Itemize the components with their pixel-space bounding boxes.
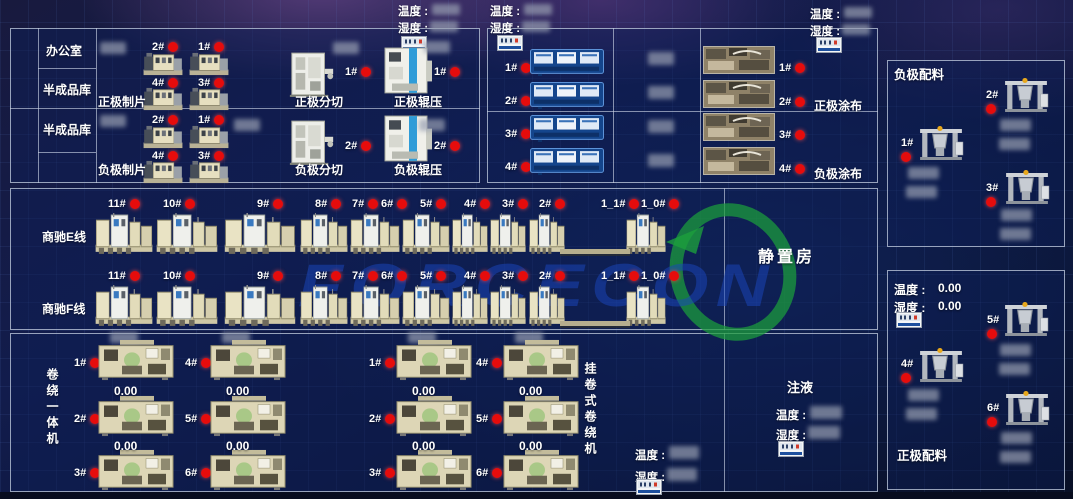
station-unit: 10# — [163, 198, 195, 210]
neg-coating-label: 负极涂布 — [814, 165, 862, 182]
unit-id-label: 4# — [185, 357, 197, 369]
winder-value: 0.00 — [412, 439, 435, 453]
redacted-value — [999, 138, 1030, 150]
winder-value: 0.00 — [226, 384, 249, 398]
neg-batch-title: 负极配料 — [894, 64, 944, 83]
winder-machine[interactable] — [210, 339, 286, 381]
unit-id-label: 2# — [505, 95, 517, 107]
coater-unit: 2# — [779, 96, 805, 108]
redacted-value — [906, 186, 937, 198]
unit-id-label: 2# — [434, 140, 446, 152]
coater-unit: 1# — [779, 62, 805, 74]
station-unit: 11# — [108, 198, 140, 210]
winder-machine[interactable] — [98, 395, 174, 437]
line-machine[interactable] — [490, 213, 526, 258]
unit-id-label: 3# — [502, 198, 514, 210]
resting-room-label: 静置房 — [758, 243, 815, 267]
unit-id-label: 6# — [185, 467, 197, 479]
pos-coating-label: 正极涂布 — [814, 97, 862, 114]
status-indicator — [185, 199, 195, 209]
unit-id-label: 1# — [369, 357, 381, 369]
line-machine[interactable] — [490, 285, 526, 330]
unit-id-label: 7# — [352, 270, 364, 282]
unit-id-label: 3# — [779, 129, 791, 141]
redacted-value — [810, 406, 842, 419]
unit-id-label: 5# — [420, 270, 432, 282]
status-indicator — [986, 104, 996, 114]
sheet-machine[interactable] — [189, 52, 229, 76]
temp-label: 温度 : — [810, 6, 840, 22]
hum-label: 湿度 : — [490, 20, 520, 36]
slitting-machine-unit: 1# — [345, 66, 371, 78]
thermometer-widget — [896, 312, 922, 328]
winder-machine[interactable] — [503, 339, 579, 381]
coater-unit: 3# — [779, 129, 805, 141]
winder-unit: 6# — [185, 467, 211, 479]
redacted-value — [1000, 228, 1031, 240]
mixer-machine[interactable] — [1004, 170, 1050, 206]
redacted-value — [908, 389, 939, 401]
station-unit: 7# — [352, 198, 378, 210]
redacted-value — [669, 446, 699, 459]
temp-label: 温度 : — [776, 407, 806, 423]
line-machine[interactable] — [224, 285, 296, 330]
unit-id-label: 9# — [257, 198, 269, 210]
coater-screen-unit: 2# — [505, 95, 531, 107]
line-machine[interactable] — [224, 213, 296, 258]
line-machine[interactable] — [452, 285, 488, 330]
unit-id-label: 5# — [476, 413, 488, 425]
line-e-label: 商驰E线 — [42, 228, 86, 245]
winder-unit: 1# — [369, 357, 395, 369]
line-machine[interactable] — [95, 213, 153, 258]
redacted-value — [1000, 344, 1031, 356]
pos-batch-title: 正极配料 — [897, 445, 947, 464]
injection-title: 注液 — [787, 377, 813, 396]
redacted-value — [333, 42, 359, 54]
unit-id-label: 5# — [987, 314, 999, 326]
unit-id-label: 3# — [369, 467, 381, 479]
redacted-value — [100, 115, 126, 127]
status-indicator — [987, 329, 997, 339]
roller-press-machine[interactable] — [382, 46, 434, 96]
unit-id-label: 2# — [779, 96, 791, 108]
winder-value: 0.00 — [412, 384, 435, 398]
line-machine[interactable] — [402, 213, 450, 258]
unit-id-label: 1# — [434, 66, 446, 78]
winder-unit: 1# — [74, 357, 100, 369]
mixer-machine[interactable] — [1003, 302, 1049, 338]
unit-id-label: 1# — [901, 137, 913, 149]
temp-value: 0.00 — [938, 281, 961, 295]
status-indicator — [901, 152, 911, 162]
redacted-value — [1000, 451, 1031, 463]
station-unit: 3# — [502, 270, 528, 282]
coater-screen[interactable] — [530, 148, 604, 175]
redacted-value — [842, 24, 870, 35]
coater-unit: 4# — [779, 163, 805, 175]
line-machine[interactable] — [156, 285, 218, 330]
unit-id-label: 4# — [901, 358, 913, 370]
thermometer-widget — [816, 37, 842, 53]
status-indicator — [492, 468, 502, 478]
redacted-value — [906, 408, 937, 420]
winder-unit: 5# — [476, 413, 502, 425]
sheet-machine[interactable] — [189, 87, 229, 111]
redacted-value — [1001, 209, 1032, 221]
status-indicator — [385, 414, 395, 424]
winder-machine[interactable] — [210, 449, 286, 491]
status-indicator — [555, 271, 565, 281]
integrated-winder-label: 卷绕一体机 — [44, 368, 61, 448]
mixer-unit: 6# — [987, 402, 999, 427]
unit-id-label: 1_1# — [601, 198, 625, 210]
sheet-machine[interactable] — [189, 125, 229, 149]
unit-id-label: 8# — [315, 270, 327, 282]
line-machine[interactable] — [452, 213, 488, 258]
unit-id-label: 4# — [476, 357, 488, 369]
line-machine[interactable] — [350, 285, 400, 330]
sheet-machine[interactable] — [143, 125, 183, 149]
status-indicator — [795, 130, 805, 140]
sheet-machine[interactable] — [189, 160, 229, 184]
winder-machine[interactable] — [98, 339, 174, 381]
unit-id-label: 2# — [345, 140, 357, 152]
mixer-machine[interactable] — [918, 126, 964, 162]
status-indicator — [480, 271, 490, 281]
room-label-semi-store: 半成品库 — [43, 81, 91, 98]
status-indicator — [492, 414, 502, 424]
coater-screen-unit: 3# — [505, 128, 531, 140]
status-indicator — [168, 115, 178, 125]
section-label: 负极制片 — [98, 161, 146, 178]
room-label-office: 办公室 — [46, 42, 82, 59]
unit-id-label: 6# — [476, 467, 488, 479]
unit-id-label: 11# — [108, 270, 126, 282]
room-label-semi-store: 半成品库 — [43, 121, 91, 138]
redacted-value — [648, 86, 674, 99]
unit-id-label: 3# — [74, 467, 86, 479]
station-unit: 1_1# — [601, 198, 639, 210]
station-unit: 11# — [108, 270, 140, 282]
status-indicator — [629, 271, 639, 281]
roller-machine-unit: 2# — [434, 140, 460, 152]
sheet-machine[interactable] — [143, 52, 183, 76]
unit-id-label: 5# — [185, 413, 197, 425]
thermometer-widget — [636, 479, 662, 495]
winder-unit: 4# — [185, 357, 211, 369]
unit-id-label: 3# — [986, 182, 998, 194]
redacted-value — [522, 21, 550, 32]
unit-id-label: 1_0# — [641, 198, 665, 210]
status-indicator — [492, 358, 502, 368]
status-indicator — [185, 271, 195, 281]
mixer-machine[interactable] — [1004, 391, 1050, 427]
status-indicator — [518, 271, 528, 281]
mixer-unit: 4# — [901, 358, 913, 383]
unit-id-label: 4# — [464, 198, 476, 210]
status-indicator — [331, 199, 341, 209]
status-indicator — [629, 199, 639, 209]
redacted-value — [648, 52, 674, 65]
redacted-value — [234, 119, 260, 131]
status-indicator — [368, 199, 378, 209]
conveyor — [560, 249, 630, 254]
redacted-value — [424, 41, 450, 53]
winder-unit: 2# — [369, 413, 395, 425]
unit-id-label: 6# — [381, 198, 393, 210]
winder-unit: 4# — [476, 357, 502, 369]
slitting-machine[interactable] — [287, 50, 337, 98]
redacted-value — [100, 42, 126, 54]
winder-unit: 3# — [369, 467, 395, 479]
station-unit: 2# — [539, 270, 565, 282]
unit-id-label: 6# — [987, 402, 999, 414]
winder-unit: 2# — [74, 413, 100, 425]
unit-id-label: 1# — [505, 62, 517, 74]
coater-camera-photo[interactable] — [703, 113, 775, 141]
unit-id-label: 4# — [779, 163, 791, 175]
line-machine[interactable] — [300, 213, 348, 258]
thermometer-widget — [778, 441, 804, 457]
unit-id-label: 2# — [74, 413, 86, 425]
coater-screen[interactable] — [530, 115, 604, 142]
status-indicator — [385, 358, 395, 368]
line-machine[interactable] — [626, 285, 666, 330]
section-label: 负极辊压 — [394, 161, 442, 178]
redacted-value — [808, 426, 840, 439]
redacted-value — [430, 21, 458, 32]
station-unit: 7# — [352, 270, 378, 282]
status-indicator — [397, 271, 407, 281]
status-indicator — [669, 199, 679, 209]
coater-screen-unit: 1# — [505, 62, 531, 74]
thermometer-widget — [497, 35, 523, 51]
station-unit: 9# — [257, 198, 283, 210]
station-unit: 2# — [539, 198, 565, 210]
status-indicator — [385, 468, 395, 478]
mixer-machine[interactable] — [1003, 78, 1049, 114]
station-unit: 8# — [315, 270, 341, 282]
unit-id-label: 2# — [539, 270, 551, 282]
coater-screen[interactable] — [530, 49, 604, 76]
station-unit: 4# — [464, 198, 490, 210]
line-machine[interactable] — [350, 213, 400, 258]
unit-id-label: 2# — [986, 89, 998, 101]
station-unit: 8# — [315, 198, 341, 210]
sheet-machine[interactable] — [143, 160, 183, 184]
section-label: 正极分切 — [295, 93, 343, 110]
unit-id-label: 11# — [108, 198, 126, 210]
mixer-unit: 1# — [901, 137, 913, 162]
line-machine[interactable] — [156, 213, 218, 258]
status-indicator — [130, 199, 140, 209]
redacted-value — [1000, 119, 1031, 131]
station-unit: 9# — [257, 270, 283, 282]
coater-camera-photo[interactable] — [703, 80, 775, 108]
status-indicator — [214, 115, 224, 125]
line-f-label: 商驰F线 — [42, 300, 85, 317]
unit-id-label: 3# — [502, 270, 514, 282]
winder-value: 0.00 — [114, 439, 137, 453]
status-indicator — [450, 141, 460, 151]
status-indicator — [795, 63, 805, 73]
unit-id-label: 4# — [505, 161, 517, 173]
winder-machine[interactable] — [396, 449, 472, 491]
line-machine[interactable] — [402, 285, 450, 330]
status-indicator — [214, 42, 224, 52]
winder-value: 0.00 — [519, 439, 542, 453]
station-unit: 10# — [163, 270, 195, 282]
status-indicator — [518, 199, 528, 209]
winder-unit: 5# — [185, 413, 211, 425]
status-indicator — [436, 271, 446, 281]
hum-label: 湿度 : — [398, 20, 428, 36]
station-unit: 6# — [381, 198, 407, 210]
status-indicator — [168, 42, 178, 52]
coater-camera-photo[interactable] — [703, 46, 775, 74]
unit-id-label: 1# — [779, 62, 791, 74]
unit-id-label: 8# — [315, 198, 327, 210]
status-indicator — [436, 199, 446, 209]
redacted-value — [908, 167, 939, 179]
line-machine[interactable] — [95, 285, 153, 330]
station-unit: 6# — [381, 270, 407, 282]
redacted-value — [432, 4, 460, 15]
station-unit: 5# — [420, 270, 446, 282]
unit-id-label: 3# — [505, 128, 517, 140]
unit-id-label: 1_0# — [641, 270, 665, 282]
winder-machine[interactable] — [210, 395, 286, 437]
winder-value: 0.00 — [519, 384, 542, 398]
winder-machine[interactable] — [503, 449, 579, 491]
mixer-machine[interactable] — [918, 348, 964, 384]
section-label: 正极辊压 — [394, 93, 442, 110]
unit-id-label: 10# — [163, 198, 181, 210]
unit-id-label: 6# — [381, 270, 393, 282]
mixer-unit: 5# — [987, 314, 999, 339]
winder-machine[interactable] — [98, 449, 174, 491]
redacted-value — [648, 120, 674, 133]
station-unit: 3# — [502, 198, 528, 210]
unit-id-label: 1# — [345, 66, 357, 78]
status-indicator — [901, 373, 911, 383]
status-indicator — [987, 417, 997, 427]
hum-value: 0.00 — [938, 299, 961, 313]
status-indicator — [130, 271, 140, 281]
unit-id-label: 9# — [257, 270, 269, 282]
mixer-unit: 2# — [986, 89, 998, 114]
status-indicator — [480, 199, 490, 209]
status-indicator — [669, 271, 679, 281]
winder-unit: 6# — [476, 467, 502, 479]
redacted-value — [1001, 432, 1032, 444]
temp-label: 温度 : — [398, 3, 428, 19]
slitting-machine[interactable] — [287, 118, 337, 166]
status-indicator — [555, 199, 565, 209]
redacted-value — [419, 119, 445, 131]
coater-screen[interactable] — [530, 82, 604, 109]
station-unit: 1_1# — [601, 270, 639, 282]
battery-factory-scada-dashboard: FORCECON 温度 :湿度 :温度 :湿度 :温度 :湿度 :办公室半成品库… — [0, 0, 1073, 499]
status-indicator — [361, 141, 371, 151]
status-indicator — [273, 199, 283, 209]
content-layer: 温度 :湿度 :温度 :湿度 :温度 :湿度 :办公室半成品库半成品库2#1#4… — [0, 0, 1073, 499]
status-indicator — [986, 197, 996, 207]
redacted-value — [648, 154, 674, 167]
redacted-value — [667, 468, 697, 481]
status-indicator — [331, 271, 341, 281]
status-indicator — [795, 164, 805, 174]
mixer-unit: 3# — [986, 182, 998, 207]
winder-value: 0.00 — [226, 439, 249, 453]
status-indicator — [361, 67, 371, 77]
line-machine[interactable] — [300, 285, 348, 330]
coater-screen-unit: 4# — [505, 161, 531, 173]
hanging-winder-label: 挂卷式卷绕机 — [582, 362, 599, 458]
unit-id-label: 1# — [74, 357, 86, 369]
coater-camera-photo[interactable] — [703, 147, 775, 175]
station-unit: 1_0# — [641, 270, 679, 282]
slitting-machine-unit: 2# — [345, 140, 371, 152]
winder-machine[interactable] — [396, 339, 472, 381]
unit-id-label: 7# — [352, 198, 364, 210]
conveyor — [560, 321, 630, 326]
temp-label: 温度 : — [490, 3, 520, 19]
unit-id-label: 5# — [420, 198, 432, 210]
unit-id-label: 1_1# — [601, 270, 625, 282]
winder-machine[interactable] — [396, 395, 472, 437]
status-indicator — [397, 199, 407, 209]
temp-label: 温度 : — [635, 447, 665, 463]
status-indicator — [273, 271, 283, 281]
unit-id-label: 2# — [369, 413, 381, 425]
status-indicator — [450, 67, 460, 77]
section-label: 正极制片 — [98, 93, 146, 110]
roller-machine-unit: 1# — [434, 66, 460, 78]
redacted-value — [844, 7, 872, 18]
station-unit: 1_0# — [641, 198, 679, 210]
winder-machine[interactable] — [503, 395, 579, 437]
station-unit: 4# — [464, 270, 490, 282]
unit-id-label: 2# — [539, 198, 551, 210]
unit-id-label: 10# — [163, 270, 181, 282]
winder-value: 0.00 — [114, 384, 137, 398]
temp-label: 温度 : — [894, 281, 925, 298]
line-machine[interactable] — [626, 213, 666, 258]
status-indicator — [795, 97, 805, 107]
redacted-value — [524, 4, 552, 15]
section-label: 负极分切 — [295, 161, 343, 178]
winder-unit: 3# — [74, 467, 100, 479]
redacted-value — [999, 363, 1030, 375]
sheet-machine[interactable] — [143, 87, 183, 111]
station-unit: 5# — [420, 198, 446, 210]
unit-id-label: 4# — [464, 270, 476, 282]
status-indicator — [368, 271, 378, 281]
